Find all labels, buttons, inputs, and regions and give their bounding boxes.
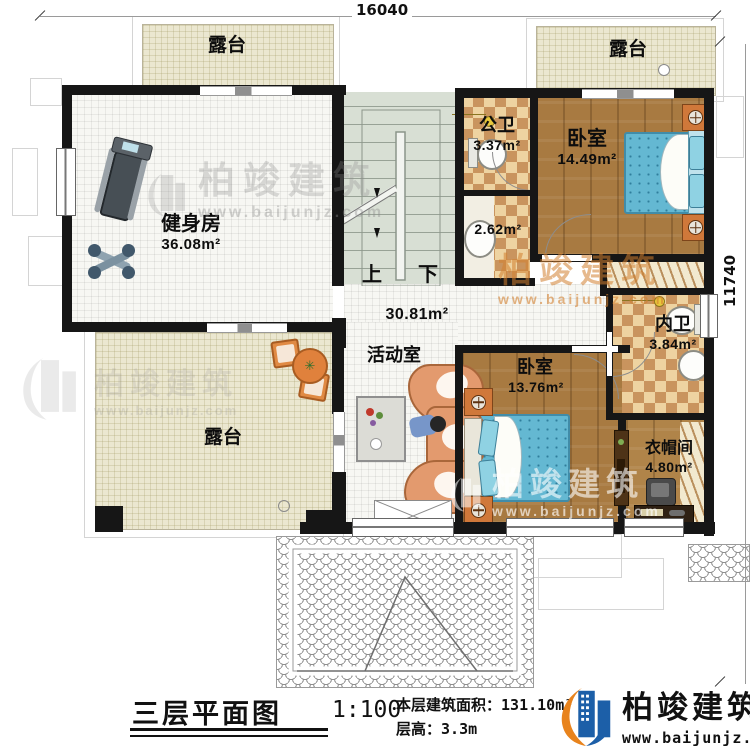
floor-area-row: 本层建筑面积：131.10m² bbox=[396, 694, 573, 715]
floor-height-label: 层高： bbox=[396, 721, 441, 738]
right-dimension-label: 11740 bbox=[721, 239, 739, 323]
drawing-title: 三层平面图 bbox=[132, 699, 282, 729]
drain-icon bbox=[278, 500, 290, 512]
pillow bbox=[478, 459, 499, 497]
terrace-door-glass bbox=[207, 323, 287, 333]
patio-table-icon: ✳ bbox=[292, 348, 328, 384]
title-underline bbox=[130, 735, 328, 737]
right-dimension-line bbox=[745, 44, 746, 684]
room-area-inner-bath: 3.84m² bbox=[640, 337, 706, 352]
brand-logo-icon bbox=[556, 682, 618, 748]
chair-icon bbox=[646, 478, 676, 506]
floor-plan-canvas: 16040 11740 bbox=[0, 0, 750, 753]
floor-area-label: 本层建筑面积： bbox=[396, 697, 501, 714]
room-area-gym: 36.08m² bbox=[143, 237, 239, 254]
light-stem bbox=[622, 300, 656, 301]
door-opening bbox=[333, 286, 343, 318]
coffee-table-icon bbox=[356, 396, 406, 462]
pillow bbox=[689, 174, 705, 208]
room-area-bedroom-top: 14.49m² bbox=[545, 152, 629, 169]
room-area-wash: 2.62m² bbox=[462, 222, 534, 237]
roof-tiles bbox=[276, 536, 534, 688]
room-area-cloakroom: 4.80m² bbox=[638, 460, 700, 475]
window bbox=[506, 518, 614, 537]
floor-height-value: 3.3m bbox=[441, 720, 477, 738]
stairs-detail bbox=[344, 92, 456, 286]
window bbox=[352, 518, 454, 537]
brand-name: 柏竣建筑 bbox=[622, 682, 750, 727]
room-label-gym: 健身房 bbox=[143, 213, 239, 235]
room-label-terrace-tr: 露台 bbox=[588, 40, 668, 61]
ac-platform-outline bbox=[28, 236, 64, 286]
drawing-scale: 1:100 bbox=[332, 697, 401, 723]
ac-platform-outline bbox=[716, 96, 744, 158]
nightstand-icon bbox=[464, 388, 493, 416]
top-dimension-label: 16040 bbox=[352, 1, 412, 19]
pillow bbox=[689, 136, 705, 170]
ac-platform-outline bbox=[30, 78, 62, 106]
eave-outline bbox=[538, 558, 664, 610]
brand-website: www.baijunjz.com bbox=[622, 729, 750, 747]
nightstand-icon bbox=[464, 496, 493, 524]
wall bbox=[62, 322, 344, 332]
terrace-top-right-floor bbox=[536, 26, 716, 96]
room-label-cloakroom: 衣帽间 bbox=[630, 440, 708, 458]
closet-hanger-strip bbox=[602, 260, 704, 290]
watermark-logo-icon bbox=[14, 342, 86, 430]
light-fixture-icon bbox=[654, 296, 665, 307]
wall bbox=[332, 88, 344, 286]
dumbbells-icon bbox=[90, 242, 134, 282]
room-label-hall: 活动室 bbox=[352, 346, 436, 366]
stairs-down-label: 下 bbox=[408, 264, 448, 286]
room-area-public-bath: 3.37m² bbox=[462, 138, 532, 153]
room-label-public-bath: 公卫 bbox=[464, 116, 530, 136]
wall bbox=[455, 278, 535, 286]
terrace-door-glass bbox=[200, 86, 292, 96]
wall bbox=[455, 88, 464, 286]
bed-headboard bbox=[464, 418, 482, 496]
stairs-up-label: 上 bbox=[352, 264, 392, 286]
ac-platform-outline bbox=[12, 148, 38, 216]
door-opening bbox=[572, 346, 618, 352]
wall-pillar bbox=[95, 506, 123, 532]
door-leaf bbox=[614, 430, 629, 506]
wall-pillar bbox=[306, 510, 344, 534]
terrace-door-glass bbox=[582, 89, 674, 99]
door-opening bbox=[542, 255, 592, 261]
terrace-door-glass bbox=[333, 412, 345, 472]
window bbox=[624, 518, 684, 537]
room-label-terrace-bl: 露台 bbox=[183, 428, 263, 449]
wall bbox=[457, 190, 530, 196]
room-label-terrace-tl: 露台 bbox=[187, 36, 267, 57]
brand-logo-group: 柏竣建筑 www.baijunjz.com bbox=[556, 682, 750, 748]
roof-tiles bbox=[688, 544, 750, 582]
title-underline bbox=[130, 728, 328, 731]
wall bbox=[455, 345, 463, 528]
wall bbox=[606, 288, 714, 295]
room-label-bedroom-top: 卧室 bbox=[552, 128, 622, 150]
drain-icon bbox=[658, 64, 670, 76]
window bbox=[700, 294, 718, 338]
room-area-hall: 30.81m² bbox=[372, 306, 462, 324]
drawing-title-group: 三层平面图 bbox=[132, 692, 282, 731]
room-label-inner-bath: 内卫 bbox=[645, 315, 701, 335]
wall bbox=[606, 413, 714, 420]
floor-height-row: 层高：3.3m bbox=[396, 718, 477, 739]
window bbox=[56, 148, 76, 216]
wall bbox=[332, 344, 344, 414]
door-opening bbox=[607, 332, 612, 376]
room-label-bedroom-bottom: 卧室 bbox=[502, 358, 568, 378]
room-area-bedroom-bottom: 13.76m² bbox=[496, 380, 576, 395]
